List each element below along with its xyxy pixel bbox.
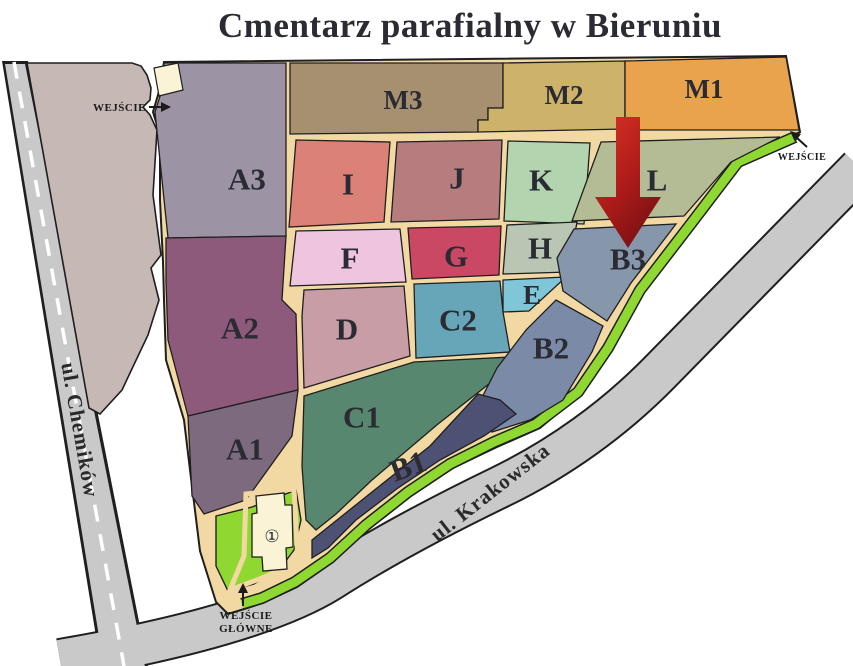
section-k-label: K [529,163,553,198]
section-a3-label: A3 [228,162,266,197]
entrance-main-label-2: GŁÓWNE [219,623,273,635]
section-c2-label: C2 [439,303,477,338]
section-i-label: I [342,167,354,202]
page-title: Cmentarz parafialny w Bieruniu [218,6,722,45]
section-j-label: J [449,161,465,196]
section-c1-label: C1 [343,400,381,435]
section-a2-label: A2 [221,311,259,346]
section-i-area[interactable] [289,140,390,227]
entrance-east-arrow [797,138,807,147]
entrance-building [154,63,183,96]
section-d-label: D [336,312,358,347]
section-a1-label: A1 [226,432,264,467]
cemetery-map: ① A3 A2 A1 M3 M2 M1 I J K L F G H E D C2… [0,0,853,666]
section-g-label: G [444,239,468,274]
entrance-west-label: WEJŚCIE [93,102,146,114]
section-m2-label: M2 [545,80,584,110]
entrance-east-label: WEJŚCIE [778,151,827,163]
cemetery-map-page: ① A3 A2 A1 M3 M2 M1 I J K L F G H E D C2… [0,0,853,666]
section-f-label: F [341,241,360,276]
church-symbol: ① [264,527,279,547]
section-e-label: E [523,280,541,310]
section-m3-label: M3 [384,85,423,115]
section-l-label: L [647,163,668,198]
section-m1-label: M1 [685,74,724,104]
section-j-area[interactable] [391,140,502,222]
section-h-label: H [528,231,552,266]
entrance-main-label-1: WEJŚCIE [219,610,272,622]
section-b2-label: B2 [533,331,569,366]
